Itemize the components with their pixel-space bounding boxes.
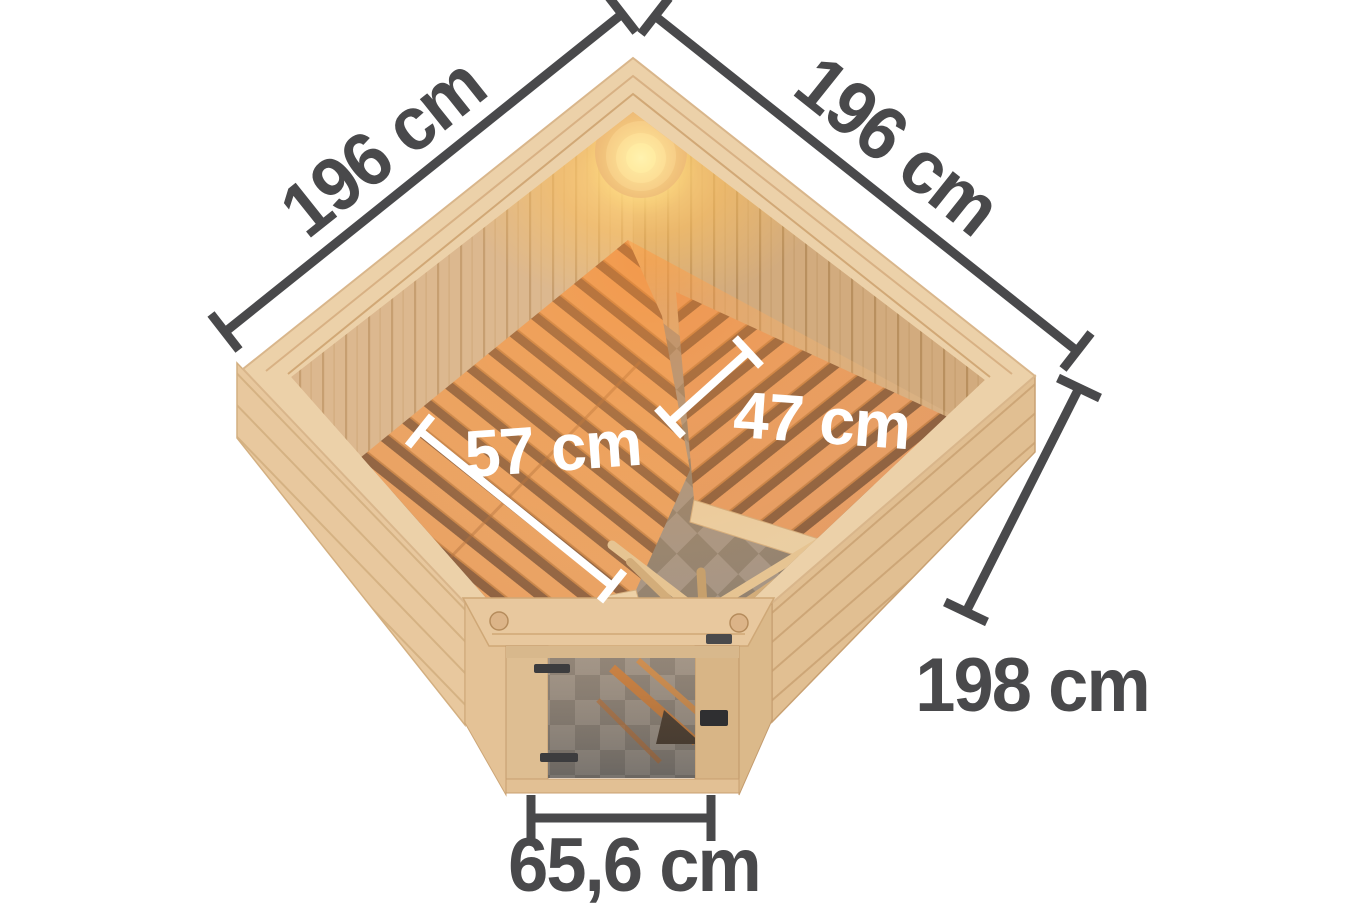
dimension-label-door-width: 65,6 cm: [508, 828, 760, 904]
door-threshold: [506, 779, 739, 793]
dimension-label-bench-left-depth: 57 cm: [463, 409, 644, 487]
door-bay: [463, 598, 774, 795]
header-dowel-left: [490, 612, 508, 630]
sauna-illustration: [0, 0, 1359, 904]
sauna-dimension-diagram: 196 cm 196 cm 198 cm 65,6 cm 57 cm 47 cm: [0, 0, 1359, 904]
door-hinge-top: [534, 664, 570, 673]
door-top-rail: [506, 646, 739, 658]
door-handle: [700, 710, 728, 726]
header-dowel-right: [730, 614, 748, 632]
dimension-label-front-right-wall: 198 cm: [915, 648, 1148, 724]
door-closer-bracket: [706, 634, 732, 644]
dimension-label-bench-right-depth: 47 cm: [732, 381, 913, 459]
door-hinge-bottom: [540, 753, 578, 762]
